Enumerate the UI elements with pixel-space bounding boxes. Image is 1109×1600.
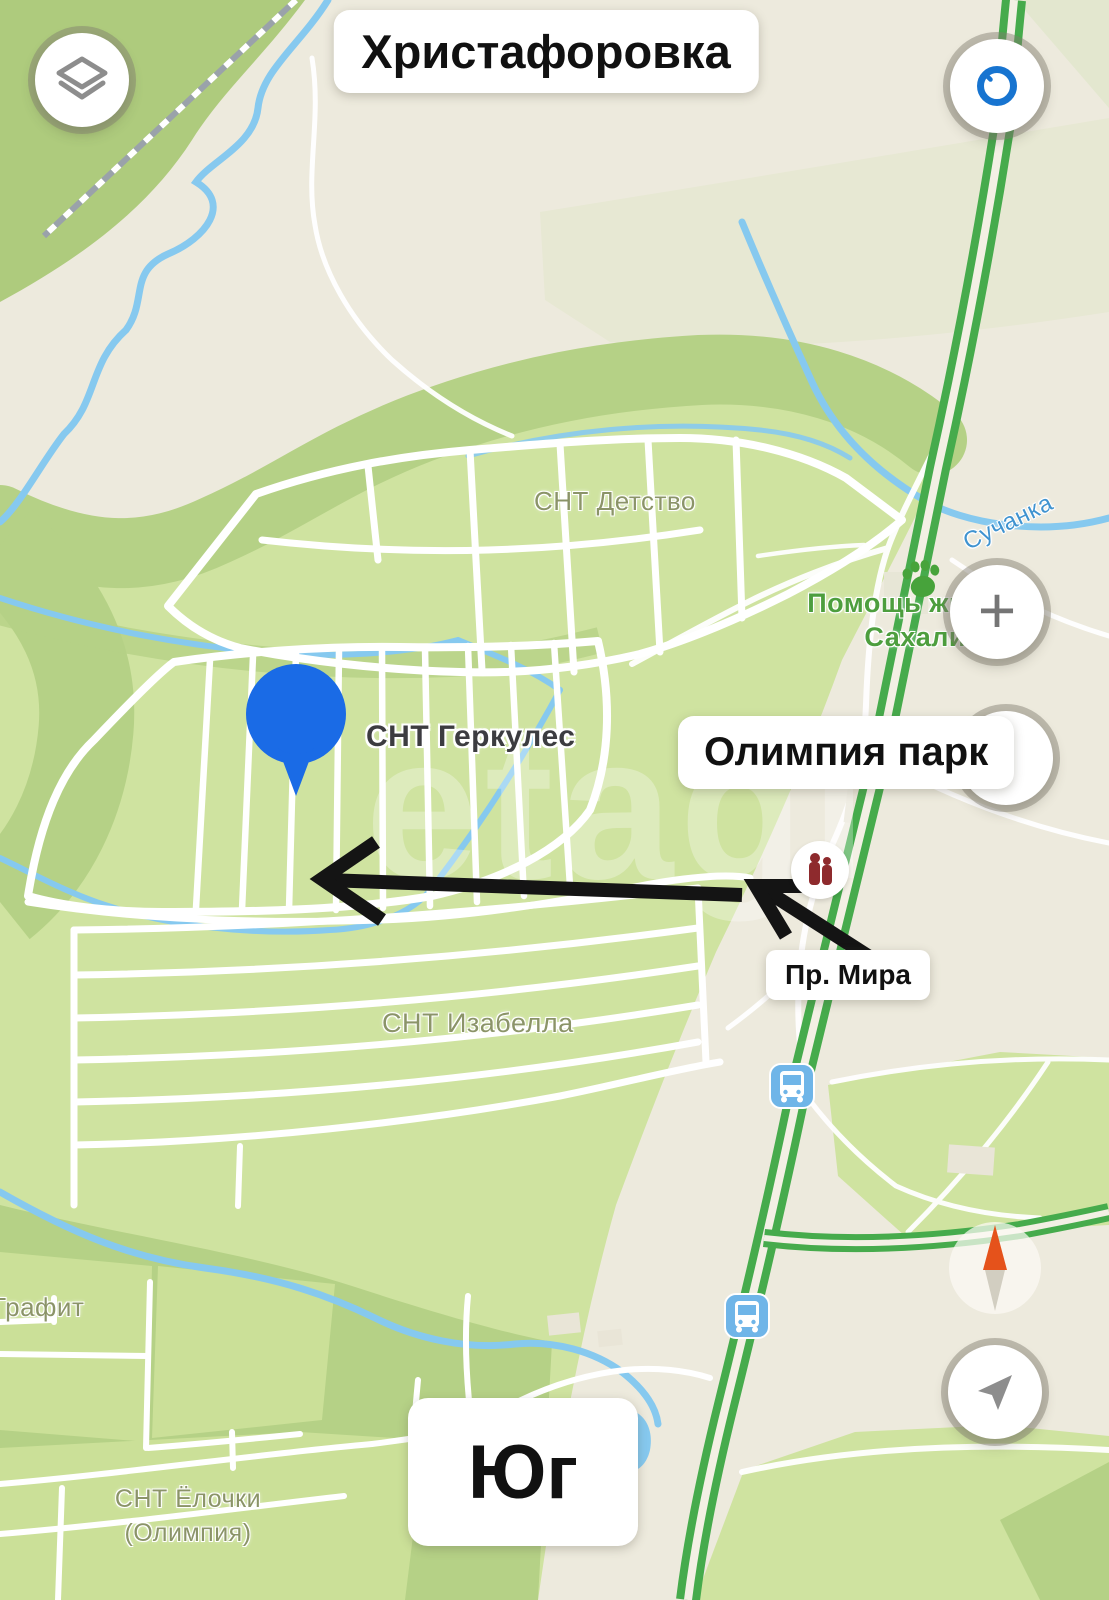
monument-icon xyxy=(800,850,840,890)
map-pin[interactable] xyxy=(246,664,346,805)
bus-stop-poi[interactable] xyxy=(724,1293,770,1344)
label-snt-gerkules: СНТ Геркулес xyxy=(366,720,575,754)
animal-help-poi[interactable] xyxy=(898,558,946,607)
plus-icon: + xyxy=(978,577,1017,643)
map-app: etagi СНТ Детство СНТ Геркулес СНТ Изабе… xyxy=(0,0,1109,1600)
label-animal-help-line2: Сахали xyxy=(864,622,966,652)
traffic-dial-icon xyxy=(969,58,1025,114)
olimpia-park-badge: Олимпия парк xyxy=(678,716,1014,789)
label-snt-yolochki-line2: (Олимпия) xyxy=(124,1519,251,1547)
compass-needle-icon xyxy=(973,1223,1017,1313)
label-grafit: Графит xyxy=(0,1292,84,1323)
paw-icon xyxy=(898,558,946,602)
traffic-button[interactable] xyxy=(950,39,1044,133)
zoom-in-button[interactable]: + xyxy=(950,565,1044,659)
monument-poi[interactable] xyxy=(791,841,849,899)
label-snt-detstvo: СНТ Детство xyxy=(534,486,696,517)
bus-stop-poi[interactable] xyxy=(769,1063,815,1114)
navigation-arrow-icon xyxy=(967,1364,1023,1420)
layers-icon xyxy=(54,52,110,108)
bus-icon xyxy=(724,1293,770,1339)
label-snt-izabella: СНТ Изабелла xyxy=(382,1008,574,1039)
label-snt-yolochki: СНТ Ёлочки (Олимпия) xyxy=(82,1482,294,1550)
title-badge: Христафоровка xyxy=(333,10,758,93)
locate-button[interactable] xyxy=(948,1345,1042,1439)
compass[interactable] xyxy=(949,1222,1041,1314)
layers-button[interactable] xyxy=(35,33,129,127)
label-snt-yolochki-line1: СНТ Ёлочки xyxy=(115,1485,261,1513)
bus-icon xyxy=(769,1063,815,1109)
yug-badge: Юг xyxy=(408,1398,638,1546)
pin-icon xyxy=(246,664,346,800)
map-canvas[interactable] xyxy=(0,0,1109,1600)
pr-mira-badge: Пр. Мира xyxy=(766,950,930,1000)
